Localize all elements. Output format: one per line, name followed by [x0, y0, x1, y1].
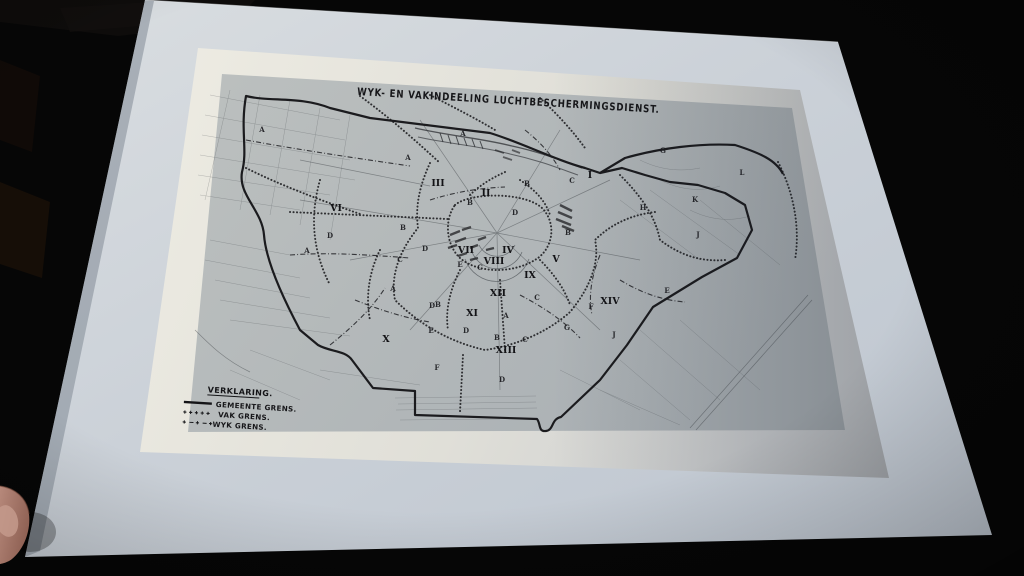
- photo-vignette: [0, 0, 1024, 576]
- photo-of-printed-map: WYK- EN VAKINDEELING LUCHTBESCHERMINGSDI…: [0, 0, 1024, 576]
- photo-canvas: WYK- EN VAKINDEELING LUCHTBESCHERMINGSDI…: [0, 0, 1024, 576]
